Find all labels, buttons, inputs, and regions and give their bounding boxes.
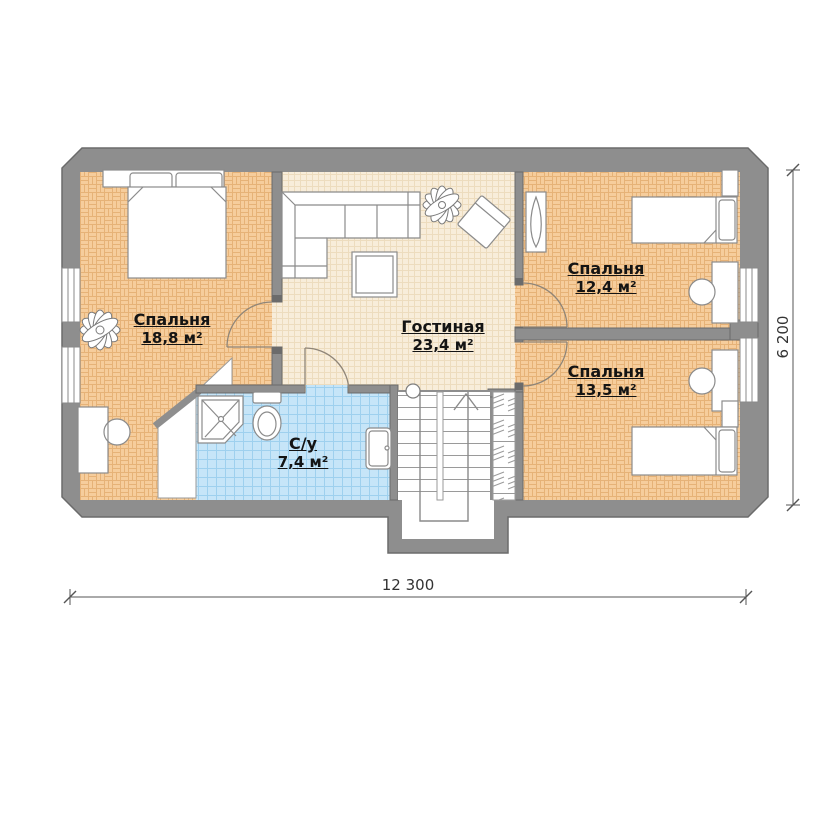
floor-plan-drawing [0, 0, 830, 831]
room-name: Спальня [134, 311, 211, 329]
room-label-bedroom-2: Спальня 12,4 м² [568, 260, 645, 296]
chair [689, 279, 715, 305]
room-name: Гостиная [401, 318, 484, 336]
room-area: 23,4 м² [401, 336, 484, 354]
chair [689, 368, 715, 394]
stair-flight-left [398, 392, 437, 500]
wardrobe-shelves [493, 392, 515, 500]
stair-stringer [437, 392, 443, 500]
coffee-table-inner [356, 256, 393, 293]
room-label-bedroom-main: Спальня 18,8 м² [134, 311, 211, 347]
sink-tap [385, 446, 389, 450]
nightstand [722, 170, 738, 196]
dimension-height-label: 6 200 [774, 316, 792, 359]
room-area: 13,5 м² [568, 381, 645, 399]
window-right-2 [740, 338, 758, 402]
window-right-1 [740, 268, 758, 322]
room-area: 12,4 м² [568, 278, 645, 296]
shower-drain [219, 417, 224, 422]
stair-flight-right [443, 392, 490, 500]
room-name: С/у [278, 435, 329, 453]
room-name: Спальня [568, 363, 645, 381]
stair-newel-post [406, 384, 420, 398]
window-left-2 [62, 347, 80, 403]
room-label-bedroom-3: Спальня 13,5 м² [568, 363, 645, 399]
pillow [719, 430, 735, 472]
room-label-living-room: Гостиная 23,4 м² [401, 318, 484, 354]
room-label-bathroom: С/у 7,4 м² [278, 435, 329, 471]
room-area: 18,8 м² [134, 329, 211, 347]
toilet-bowl-inner [258, 412, 276, 436]
pillow [719, 200, 735, 240]
window-left-1 [62, 268, 80, 322]
desk [712, 262, 738, 323]
dimension-width-label: 12 300 [382, 576, 435, 594]
toilet-tank [253, 392, 281, 403]
room-name: Спальня [568, 260, 645, 278]
double-bed [128, 187, 226, 278]
nightstand [722, 401, 738, 427]
desk [78, 407, 108, 473]
floor-stair-landing [402, 500, 494, 539]
room-area: 7,4 м² [278, 453, 329, 471]
floor-plan: Спальня 18,8 м² Гостиная 23,4 м² Спальня… [0, 0, 830, 831]
